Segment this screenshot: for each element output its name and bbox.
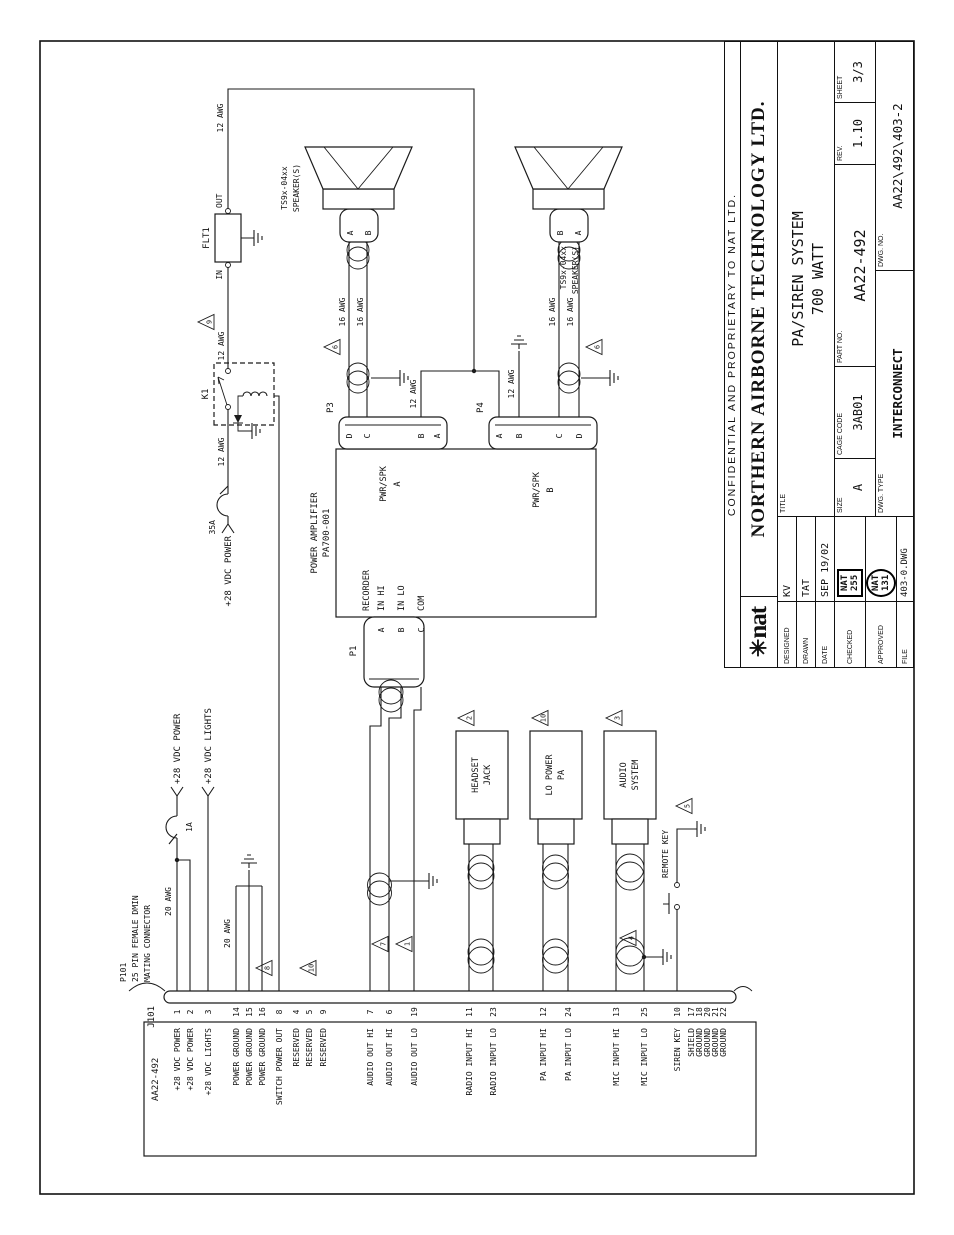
ground-symbol <box>241 855 257 868</box>
lo-power-pa-label: LO POWER <box>545 754 555 796</box>
drawing-sheet-rotated: AA22-492 J101 P101 25 PIN FEMALE DMIN MA… <box>38 39 916 1196</box>
rev-value: 1.10 <box>851 103 865 164</box>
wire-gauge-label: 16 AWG <box>338 297 347 326</box>
rev-cell: REV.1.10 <box>835 102 875 164</box>
lo-power-pa: LO POWER PA <box>530 731 582 991</box>
pin-number: 25 <box>640 1007 649 1017</box>
recorder-wires <box>368 680 438 991</box>
p3-label: P3 <box>326 402 336 413</box>
dwg-type-cell: DWG. TYPEINTERCONNECT <box>876 270 913 516</box>
mating-connector-label: 25 PIN FEMALE DMIN <box>131 895 140 982</box>
approved-stamp: NAT131 <box>866 569 896 597</box>
lo-power-pa-label: PA <box>557 770 567 780</box>
nat-logo-icon: ✳nat <box>741 596 777 667</box>
file-label: FILE <box>897 601 913 667</box>
speaker-model: TS9x-04xx <box>559 246 568 290</box>
pin-number: 24 <box>564 1007 573 1017</box>
note-flag-4: 4 <box>628 936 636 940</box>
flt1-out-label: OUT <box>215 193 224 208</box>
dwg-no-value: AA22\492\403-2 <box>890 42 905 270</box>
pin-signal-name: MIC INPUT HI <box>612 1028 621 1086</box>
note-flag-2: 2 <box>466 716 474 720</box>
speaker-terminal-letter: A <box>574 230 583 235</box>
pin-number: 15 <box>245 1007 254 1017</box>
speaker-model: TS9x-04xx <box>280 166 289 210</box>
pin-signal-name: RADIO INPUT HI <box>465 1028 474 1096</box>
p4-pin-letter: C <box>555 433 564 438</box>
pin-number: 4 <box>292 1009 301 1014</box>
pin-number: 16 <box>258 1007 267 1017</box>
file-value: 403-0.DWG <box>900 517 910 601</box>
pin-number: 2 <box>186 1009 195 1014</box>
p3-connector <box>339 417 447 449</box>
connector-curl-top <box>129 983 165 991</box>
note-flag-3: 3 <box>614 716 622 720</box>
p1-pin-letter: A <box>377 627 386 632</box>
pin-signal-name: POWER GROUND <box>232 1028 241 1086</box>
p4-label: P4 <box>476 402 486 413</box>
wire-gauge-label: 12 AWG <box>217 437 226 466</box>
audio-system-label: AUDIO <box>619 762 629 788</box>
part-no-cell: PART NO.AA22-492 <box>835 164 875 366</box>
switch-power-wire <box>267 396 279 991</box>
p4-pin-letter: B <box>515 433 524 438</box>
cable-label: AA22-492 <box>151 1058 161 1101</box>
pin-number: 10 <box>673 1007 682 1017</box>
date-value: SEP 19/02 <box>820 517 831 601</box>
pin-signal-name: AUDIO OUT LO <box>410 1028 419 1086</box>
p3-pin-letter: A <box>433 433 442 438</box>
sheet-cell: SHEET3/3 <box>835 42 875 102</box>
k1-relay: K1 <box>201 363 274 439</box>
confidential-notice: CONFIDENTIAL AND PROPRIETARY TO NAT LTD. <box>725 42 741 667</box>
pin-signal-name: +28 VDC LIGHTS <box>204 1028 213 1096</box>
in-hi-label: IN HI <box>377 585 387 611</box>
power-amplifier: POWER AMPLIFIER PA700-001 RECORDER IN HI… <box>310 402 597 687</box>
pin-signal-name: PA INPUT HI <box>539 1028 548 1081</box>
p4-pin-letter: D <box>575 433 584 438</box>
p1-connector <box>364 617 424 687</box>
wire-gauge-label: 12 AWG <box>217 331 226 360</box>
file-row: FILE403-0.DWG <box>897 517 913 667</box>
wire-gauge-label: 16 AWG <box>548 297 557 326</box>
pin-signal-name: GROUND <box>719 1028 728 1057</box>
mating-connector-label: MATING CONNECTOR <box>143 905 152 982</box>
ground-symbol <box>692 821 705 837</box>
sheet-value: 3/3 <box>851 42 865 102</box>
wire-gauge-label: 12 AWG <box>507 369 516 398</box>
note-flag-10: 10 <box>308 964 316 972</box>
pin-signal-name: AUDIO OUT HI <box>366 1028 375 1086</box>
pin-number: 7 <box>366 1009 375 1014</box>
ground-symbol <box>424 873 437 889</box>
designed-row: DESIGNEDKV <box>778 517 797 667</box>
pin-signal-name: RESERVED <box>292 1028 301 1067</box>
date-label: DATE <box>816 601 834 667</box>
pin-signal-name: MIC INPUT LO <box>640 1028 649 1086</box>
v28-power-label: +28 VDC POWER <box>173 713 183 784</box>
company-banner: ✳nat NORTHERN AIRBORNE TECHNOLOGY LTD. <box>741 42 778 667</box>
pin-signal-name: +28 VDC POWER <box>186 1028 195 1091</box>
pwr-spk-a-label: PWR/SPK <box>379 465 389 502</box>
size-cell: SIZEA <box>835 458 875 516</box>
speaker-band <box>323 189 394 209</box>
k1-label: K1 <box>201 389 211 400</box>
ground-symbol <box>511 336 527 349</box>
pwr-spk-b-label: PWR/SPK <box>532 471 542 508</box>
speaker-terminal-letter: B <box>364 230 373 235</box>
wire-gauge-label: 20 AWG <box>223 919 232 948</box>
headset-jack-label: JACK <box>483 764 493 785</box>
ground-symbol <box>395 370 408 386</box>
power-input-wires: 20 AWG 1A +28 VDC POWER +28 VDC LIGHTS <box>164 708 214 991</box>
remote-key-label: REMOTE KEY <box>661 830 670 878</box>
title-cell: TITLE PA/SIREN SYSTEM 700 WATT <box>778 42 835 516</box>
pin-signal-name: SWITCH POWER OUT <box>275 1028 284 1105</box>
pin-number: 8 <box>275 1009 284 1014</box>
title-block: CONFIDENTIAL AND PROPRIETARY TO NAT LTD.… <box>724 41 914 668</box>
pwr-spk-a-letter: A <box>393 481 403 486</box>
amplifier-part-number: PA700-001 <box>322 509 332 558</box>
p1-pin-letter: C <box>417 627 426 632</box>
note-flag-10: 10 <box>540 714 548 722</box>
note-flag-1: 1 <box>404 942 412 946</box>
ground-symbol <box>605 370 618 386</box>
checked-stamp: NAT255 <box>837 569 863 597</box>
breaker-35a-label: 35A <box>208 520 217 535</box>
wire-gauge-label: 16 AWG <box>566 297 575 326</box>
pin-number: 13 <box>612 1007 621 1017</box>
speaker-horn <box>305 147 412 189</box>
flt1-in-label: IN <box>215 270 224 280</box>
drawing-page: AA22-492 J101 P101 25 PIN FEMALE DMIN MA… <box>0 0 954 1235</box>
pin-number: 9 <box>319 1009 328 1014</box>
p3-pin-letter: C <box>363 433 372 438</box>
pin-number: 19 <box>410 1007 419 1017</box>
pin-number: 22 <box>719 1007 728 1017</box>
checked-label: CHECKED <box>835 601 865 667</box>
cage-code-value: 3AB01 <box>851 367 865 458</box>
pin-signal-name: PA INPUT LO <box>564 1028 573 1081</box>
pin-signal-name: RADIO INPUT LO <box>489 1028 498 1096</box>
pin-number: 12 <box>539 1007 548 1017</box>
speaker-terminal-base <box>340 209 378 242</box>
headset-jack-label: HEADSET <box>471 757 481 793</box>
mating-connector-label: P101 <box>119 963 128 982</box>
cage-code-cell: CAGE CODE3AB01 <box>835 366 875 458</box>
headset-jack: HEADSET JACK <box>456 731 508 991</box>
drawn-value: TAT <box>801 517 812 601</box>
pin-number: 6 <box>385 1009 394 1014</box>
p4b-ground: 12 AWG <box>507 336 527 417</box>
wire-gauge-label: 12 AWG <box>216 103 225 132</box>
pin-number: 14 <box>232 1007 241 1017</box>
speaker-name: SPEAKER(S) <box>292 164 301 212</box>
designed-label: DESIGNED <box>778 601 796 667</box>
audio-system-label: SYSTEM <box>631 760 641 791</box>
v28-lights-label: +28 VDC LIGHTS <box>204 708 214 784</box>
wire-gauge-label: 16 AWG <box>356 297 365 326</box>
j101-connector: AA22-492 J101 P101 25 PIN FEMALE DMIN MA… <box>119 895 756 1156</box>
note-flag-6: 6 <box>594 345 602 349</box>
ground-symbol <box>249 230 262 246</box>
note-flag-9: 9 <box>206 320 214 324</box>
wire-gauge-label: 20 AWG <box>164 887 173 916</box>
designed-value: KV <box>782 517 793 601</box>
speaker-terminal-letter: A <box>346 230 355 235</box>
p4-pin-letter: A <box>495 433 504 438</box>
note-flag-5: 5 <box>684 804 692 808</box>
j101-bar <box>164 991 736 1003</box>
com-label: COM <box>417 596 427 611</box>
p3-pin-letter: B <box>417 433 426 438</box>
p3-pin-letter: D <box>345 433 354 438</box>
speaker-1: A B TS9x-04xx SPEAKER(S) 16 AWG 16 AWG <box>280 147 412 417</box>
power-ground-bus: 20 AWG <box>223 855 262 991</box>
approved-row: APPROVEDNAT131 <box>866 517 897 667</box>
pin-number: 3 <box>204 1009 213 1014</box>
drawing-title: PA/SIREN SYSTEM 700 WATT <box>788 42 828 516</box>
pin-signal-name: POWER GROUND <box>245 1028 254 1086</box>
v28-power-label: +28 VDC POWER <box>224 535 234 606</box>
title-label: TITLE <box>780 494 787 513</box>
approved-label: APPROVED <box>866 601 896 667</box>
pin-number: 5 <box>305 1009 314 1014</box>
date-row: DATESEP 19/02 <box>816 517 835 667</box>
pin-signal-name: SIREN KEY <box>673 1028 682 1072</box>
dwg-type-value: INTERCONNECT <box>890 271 905 516</box>
dwg-no-cell: DWG. NO.AA22\492\403-2 <box>876 42 913 270</box>
part-no-value: AA22-492 <box>851 165 869 366</box>
drawn-label: DRAWN <box>797 601 815 667</box>
star-icon: ✳ <box>746 639 772 657</box>
flt1-label: FLT1 <box>202 227 212 249</box>
fuse-1a-label: 1A <box>185 822 194 832</box>
amplifier-box <box>336 449 596 617</box>
speaker-name: SPEAKER(S) <box>571 246 580 294</box>
pwr-spk-b-letter: B <box>546 487 556 492</box>
note-flag-7: 7 <box>380 942 388 946</box>
pin-signal-name: RESERVED <box>305 1028 314 1067</box>
admin-column: DESIGNEDKV DRAWNTAT DATESEP 19/02 CHECKE… <box>778 516 913 667</box>
note-flag-6: 6 <box>332 345 340 349</box>
j101-label: J101 <box>147 1006 157 1028</box>
pin-number: 1 <box>173 1009 182 1014</box>
drawn-row: DRAWNTAT <box>797 517 816 667</box>
pin-signal-name: AUDIO OUT HI <box>385 1028 394 1086</box>
logo-text: nat <box>745 607 773 639</box>
remote-key-switch: REMOTE KEY <box>661 821 705 991</box>
p1-pin-letter: B <box>397 627 406 632</box>
pin-signal-name: +28 VDC POWER <box>173 1028 182 1091</box>
pin-number: 23 <box>489 1007 498 1017</box>
pin-signal-name: RESERVED <box>319 1028 328 1067</box>
amplifier-name: POWER AMPLIFIER <box>310 492 320 574</box>
in-lo-label: IN LO <box>397 585 407 611</box>
wire-gauge-label: 12 AWG <box>409 379 418 408</box>
speaker-terminal-base <box>550 209 588 242</box>
recorder-label: RECORDER <box>362 569 372 611</box>
ground-symbol <box>658 949 671 965</box>
speaker-2: B A TS9x-04xx SPEAKER(S) 16 AWG 16 AWG <box>515 147 622 417</box>
offpage-chevrons <box>171 787 214 796</box>
company-name: NORTHERN AIRBORNE TECHNOLOGY LTD. <box>748 42 770 596</box>
main-power-feed: +28 VDC POWER 35A 12 AWG <box>208 410 234 607</box>
connector-curl-bottom <box>734 987 752 992</box>
checked-row: CHECKEDNAT255 <box>835 517 866 667</box>
pin-number: 11 <box>465 1007 474 1017</box>
speaker-terminal-letter: B <box>556 230 565 235</box>
note-flag-8: 8 <box>264 966 272 970</box>
speaker-horn <box>515 147 622 189</box>
pin-signal-name: POWER GROUND <box>258 1028 267 1086</box>
speaker-band <box>533 189 604 209</box>
p1-label: P1 <box>349 646 359 657</box>
size-value: A <box>851 459 865 516</box>
